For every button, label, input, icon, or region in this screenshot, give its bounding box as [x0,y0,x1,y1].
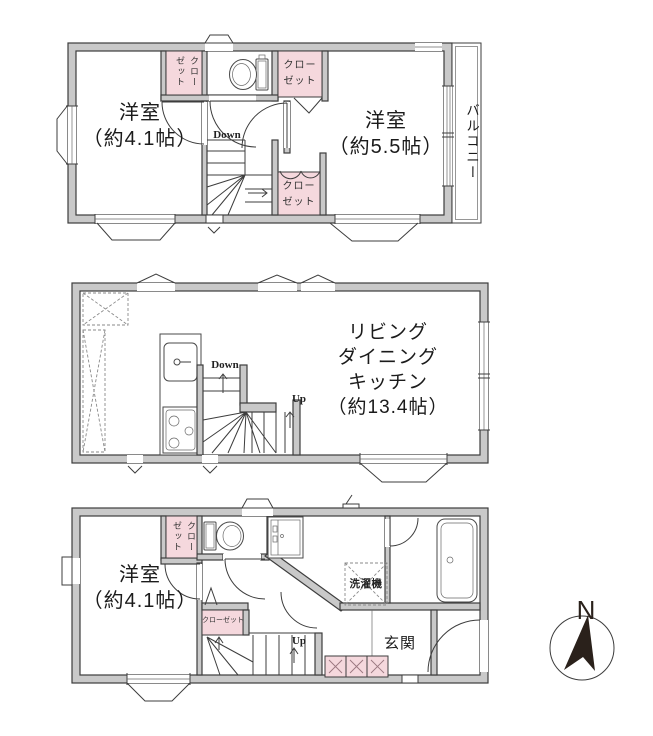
room-label-top-left: 洋室 （約4.1帖） [83,100,198,152]
stairs-down-label: Down [211,358,239,372]
washbasin-icon [268,517,303,558]
closet-label: クローゼット [168,520,198,554]
washing-machine-label: 洗濯機 [350,578,383,592]
kitchen-sink-icon [164,343,197,381]
closet-label: クローゼット [281,179,317,211]
closet-label: クローゼット [168,55,201,89]
toilet-icon [204,522,244,550]
compass-north-label: N [577,594,596,628]
balcony-label: バルコニー [454,92,480,192]
floorplan-page: 洋室 （約4.1帖） 洋室 （約5.5帖） バルコニー クローゼット クローゼッ… [0,0,653,736]
kitchen-counter-icon [160,334,201,455]
stairs-up-label: Up [292,634,306,648]
room-label-top-right: 洋室 （約5.5帖） [329,108,444,160]
closet-label: クローゼット [202,616,243,625]
entrance-label: 玄関 [384,634,416,654]
shoe-cabinet [325,656,388,677]
room-label-bottom-left: 洋室 （約4.1帖） [83,562,198,614]
stove-icon [163,407,198,453]
ldk-label: リビング ダイニング キッチン （約13.4帖） [328,320,449,420]
stairs-down-label: Down [213,128,241,142]
closet-label: クローゼット [282,58,318,90]
stairs-up-label: Up [292,392,306,406]
vent-mark [208,227,220,233]
stair-window [206,215,223,223]
bathtub-icon [437,519,477,602]
